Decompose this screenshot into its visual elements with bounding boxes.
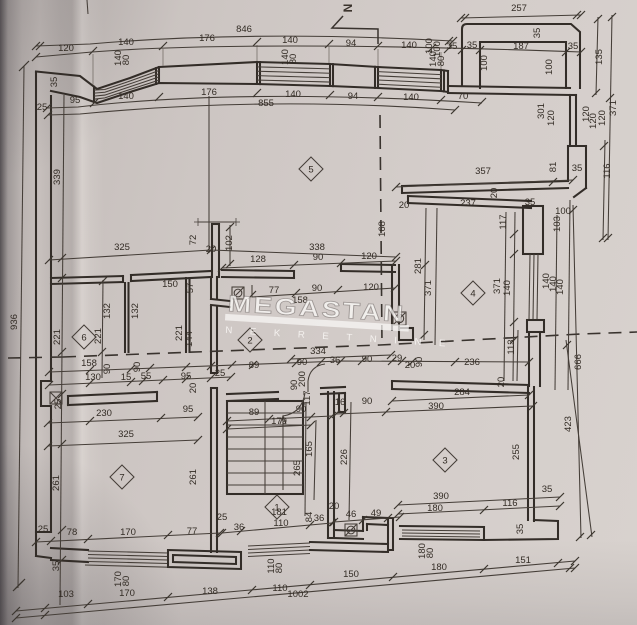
svg-text:265: 265: [292, 460, 303, 476]
svg-text:339: 339: [52, 169, 63, 185]
svg-text:237: 237: [460, 198, 476, 209]
svg-text:100: 100: [432, 41, 443, 57]
svg-text:90: 90: [102, 364, 113, 375]
svg-text:140: 140: [401, 40, 417, 51]
svg-text:117: 117: [498, 214, 509, 229]
svg-text:7: 7: [119, 473, 124, 484]
svg-text:666: 666: [573, 354, 584, 370]
svg-text:176: 176: [199, 33, 215, 44]
svg-text:371: 371: [608, 100, 619, 116]
svg-text:80: 80: [274, 563, 285, 574]
svg-text:117: 117: [302, 390, 313, 405]
svg-text:70: 70: [458, 91, 469, 102]
svg-text:89: 89: [249, 360, 260, 371]
svg-text:130: 130: [85, 372, 101, 383]
svg-text:113: 113: [506, 339, 517, 354]
svg-text:78: 78: [67, 527, 78, 538]
svg-text:120: 120: [597, 110, 608, 126]
svg-text:168: 168: [377, 221, 388, 237]
svg-text:20: 20: [489, 188, 500, 199]
svg-text:357: 357: [475, 166, 491, 177]
svg-text:325: 325: [118, 429, 134, 440]
svg-text:116: 116: [602, 163, 613, 178]
svg-text:94: 94: [348, 91, 359, 102]
svg-text:158: 158: [81, 358, 97, 369]
svg-text:170: 170: [120, 527, 136, 538]
svg-text:110: 110: [272, 583, 287, 594]
svg-text:257: 257: [511, 3, 527, 14]
svg-text:35: 35: [525, 197, 536, 208]
svg-text:334: 334: [310, 346, 326, 357]
svg-text:36: 36: [234, 522, 245, 533]
svg-text:36: 36: [314, 513, 325, 524]
svg-text:35: 35: [542, 484, 553, 495]
svg-text:150: 150: [162, 279, 178, 290]
svg-text:170: 170: [119, 588, 135, 599]
svg-text:35: 35: [49, 77, 60, 88]
svg-text:72: 72: [188, 235, 199, 246]
svg-text:80: 80: [121, 55, 132, 66]
svg-text:25: 25: [215, 368, 226, 379]
svg-text:35: 35: [568, 41, 579, 52]
svg-text:25: 25: [38, 524, 49, 535]
svg-text:132: 132: [102, 303, 113, 319]
svg-text:20: 20: [496, 377, 507, 388]
svg-text:100: 100: [544, 59, 555, 75]
svg-text:116: 116: [502, 498, 517, 509]
svg-text:132: 132: [130, 303, 141, 319]
svg-text:1002: 1002: [287, 589, 308, 600]
svg-text:140: 140: [403, 92, 419, 103]
svg-text:55: 55: [141, 371, 152, 382]
svg-text:6: 6: [81, 333, 86, 344]
svg-text:49: 49: [371, 508, 382, 519]
svg-text:102: 102: [224, 235, 235, 251]
svg-text:35: 35: [572, 163, 583, 174]
svg-text:180: 180: [427, 503, 443, 514]
svg-text:89: 89: [249, 407, 260, 418]
svg-text:144: 144: [184, 331, 195, 347]
svg-text:176: 176: [201, 87, 217, 98]
svg-text:180: 180: [431, 562, 447, 573]
svg-text:90: 90: [414, 357, 425, 368]
svg-text:29: 29: [392, 353, 403, 364]
svg-text:35: 35: [447, 41, 458, 52]
svg-text:135: 135: [594, 49, 605, 65]
svg-text:46: 46: [346, 509, 357, 520]
svg-text:25: 25: [217, 512, 228, 523]
svg-text:81: 81: [548, 162, 559, 173]
svg-text:120: 120: [363, 282, 379, 293]
svg-text:390: 390: [428, 401, 444, 412]
svg-text:25: 25: [37, 102, 48, 113]
svg-text:140: 140: [118, 37, 134, 48]
svg-text:20: 20: [206, 244, 217, 255]
svg-text:90: 90: [312, 283, 323, 294]
svg-text:221: 221: [52, 329, 63, 345]
svg-text:35: 35: [515, 524, 526, 535]
svg-text:77: 77: [187, 526, 198, 537]
svg-text:371: 371: [423, 280, 434, 296]
svg-text:20: 20: [399, 200, 410, 211]
svg-text:261: 261: [51, 475, 62, 491]
svg-text:103: 103: [552, 216, 563, 232]
svg-text:4: 4: [470, 289, 475, 300]
svg-text:423: 423: [563, 416, 574, 432]
svg-text:25: 25: [53, 399, 64, 410]
svg-text:128: 128: [250, 254, 266, 265]
svg-text:140: 140: [555, 279, 566, 295]
svg-text:80: 80: [121, 576, 132, 587]
svg-text:1: 1: [274, 503, 279, 514]
svg-text:151: 151: [515, 555, 531, 566]
svg-text:138: 138: [202, 586, 218, 597]
svg-text:100: 100: [555, 206, 571, 217]
svg-text:936: 936: [9, 314, 20, 330]
svg-text:90: 90: [362, 354, 373, 365]
svg-text:325: 325: [114, 242, 130, 253]
svg-text:281: 281: [413, 258, 424, 274]
svg-text:140: 140: [502, 280, 513, 296]
svg-text:120: 120: [361, 251, 377, 262]
svg-text:35: 35: [51, 561, 62, 572]
svg-text:390: 390: [433, 491, 449, 502]
svg-text:120: 120: [58, 43, 74, 54]
svg-text:200: 200: [297, 371, 308, 387]
svg-text:3: 3: [442, 456, 447, 467]
svg-text:90: 90: [297, 357, 308, 368]
svg-text:846: 846: [236, 24, 252, 35]
svg-text:110: 110: [273, 518, 288, 529]
svg-text:95: 95: [70, 95, 81, 106]
svg-text:16: 16: [335, 397, 346, 408]
svg-text:80: 80: [425, 548, 436, 559]
svg-text:15: 15: [121, 372, 132, 383]
svg-text:35: 35: [532, 28, 543, 39]
svg-text:140: 140: [118, 91, 134, 102]
svg-text:855: 855: [258, 98, 274, 109]
svg-text:57: 57: [185, 283, 196, 294]
svg-text:20: 20: [188, 383, 199, 394]
svg-text:35: 35: [467, 40, 478, 51]
svg-text:226: 226: [339, 449, 350, 465]
svg-text:236: 236: [464, 357, 480, 368]
svg-text:165: 165: [304, 441, 315, 457]
svg-text:120: 120: [546, 110, 557, 126]
svg-text:261: 261: [188, 469, 199, 485]
svg-text:255: 255: [511, 444, 522, 460]
svg-text:187: 187: [513, 41, 529, 52]
svg-text:5: 5: [308, 165, 313, 176]
svg-text:140: 140: [282, 35, 298, 46]
svg-text:284: 284: [454, 387, 470, 398]
svg-text:20: 20: [329, 501, 340, 512]
svg-text:36: 36: [330, 355, 341, 366]
svg-text:90: 90: [362, 396, 373, 407]
svg-text:95: 95: [183, 404, 194, 415]
svg-text:179: 179: [271, 416, 287, 427]
svg-text:80: 80: [288, 54, 299, 65]
svg-text:103: 103: [58, 589, 74, 600]
svg-text:100: 100: [479, 55, 490, 71]
svg-text:140: 140: [285, 89, 301, 100]
svg-text:90: 90: [313, 252, 324, 263]
svg-text:N: N: [341, 4, 355, 13]
svg-text:230: 230: [96, 408, 112, 419]
svg-text:95: 95: [181, 371, 192, 382]
svg-text:94: 94: [346, 38, 357, 49]
svg-text:150: 150: [343, 569, 359, 580]
